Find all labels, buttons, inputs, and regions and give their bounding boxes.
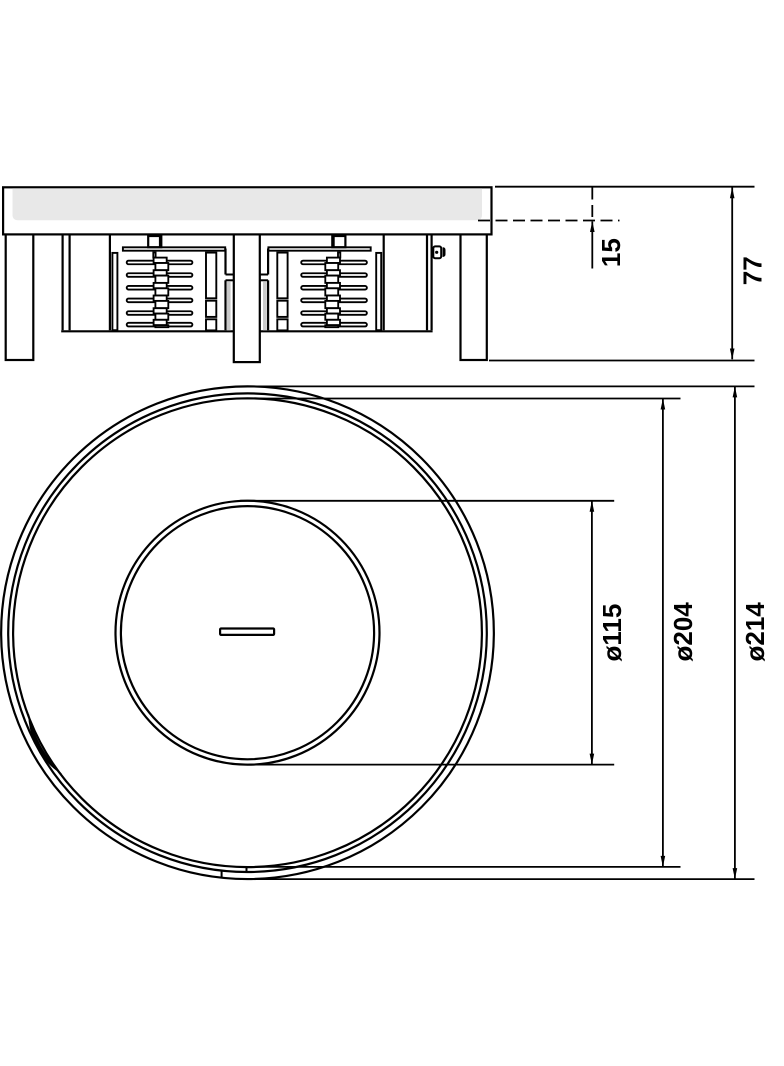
svg-text:15: 15 bbox=[596, 238, 626, 267]
svg-text:ø204: ø204 bbox=[668, 602, 698, 662]
svg-text:ø115: ø115 bbox=[597, 604, 627, 662]
svg-text:ø214: ø214 bbox=[740, 602, 770, 662]
svg-text:77: 77 bbox=[738, 256, 768, 285]
